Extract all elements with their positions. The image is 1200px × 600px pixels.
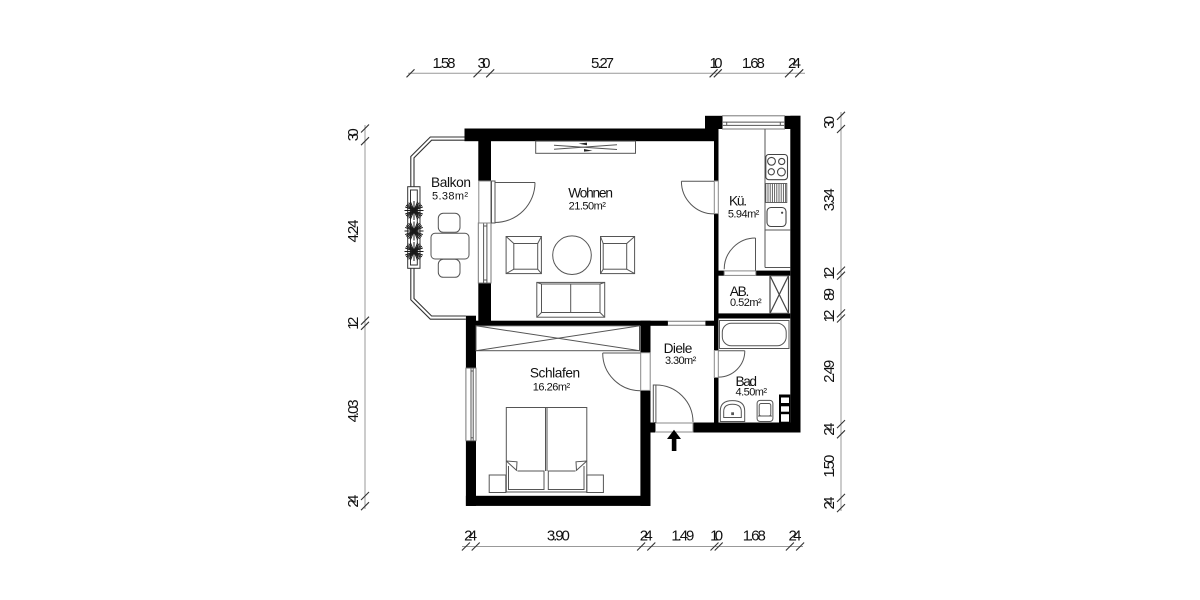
svg-text:1.49: 1.49 <box>671 528 694 545</box>
svg-text:3.30m²: 3.30m² <box>665 355 697 367</box>
svg-text:12: 12 <box>821 310 838 323</box>
svg-text:5.94m²: 5.94m² <box>728 209 760 221</box>
svg-text:3.34: 3.34 <box>821 188 838 211</box>
svg-text:12: 12 <box>821 267 838 280</box>
svg-text:16.26m²: 16.26m² <box>533 382 571 394</box>
svg-text:10: 10 <box>710 55 723 72</box>
svg-text:24: 24 <box>345 495 362 508</box>
svg-text:4.50m²: 4.50m² <box>736 387 768 399</box>
svg-text:3.90: 3.90 <box>547 528 570 545</box>
svg-text:5.27: 5.27 <box>591 55 614 72</box>
svg-text:4.03: 4.03 <box>345 399 362 422</box>
svg-text:1.68: 1.68 <box>743 528 766 545</box>
svg-text:Wohnen: Wohnen <box>568 186 613 201</box>
svg-text:1.50: 1.50 <box>821 455 838 478</box>
svg-text:1.58: 1.58 <box>433 55 456 72</box>
svg-text:24: 24 <box>821 423 838 436</box>
svg-text:89: 89 <box>821 288 838 301</box>
svg-text:5.38m²: 5.38m² <box>432 191 468 203</box>
svg-text:Diele: Diele <box>664 341 693 356</box>
svg-text:4.24: 4.24 <box>345 220 362 243</box>
svg-text:24: 24 <box>640 528 653 545</box>
svg-text:Schlafen: Schlafen <box>530 366 580 381</box>
svg-text:2.49: 2.49 <box>821 360 838 383</box>
svg-text:30: 30 <box>478 55 491 72</box>
svg-text:24: 24 <box>788 55 801 72</box>
svg-text:24: 24 <box>464 528 477 545</box>
svg-text:Balkon: Balkon <box>431 175 471 190</box>
svg-text:1.68: 1.68 <box>742 55 765 72</box>
svg-text:Kü.: Kü. <box>729 194 747 209</box>
svg-text:0.52m²: 0.52m² <box>730 297 762 309</box>
svg-text:10: 10 <box>710 528 723 545</box>
svg-text:21.50m²: 21.50m² <box>569 200 607 212</box>
svg-text:24: 24 <box>821 497 838 510</box>
svg-text:30: 30 <box>821 116 838 129</box>
svg-text:24: 24 <box>789 528 802 545</box>
svg-text:30: 30 <box>345 128 362 141</box>
svg-text:12: 12 <box>345 317 362 330</box>
